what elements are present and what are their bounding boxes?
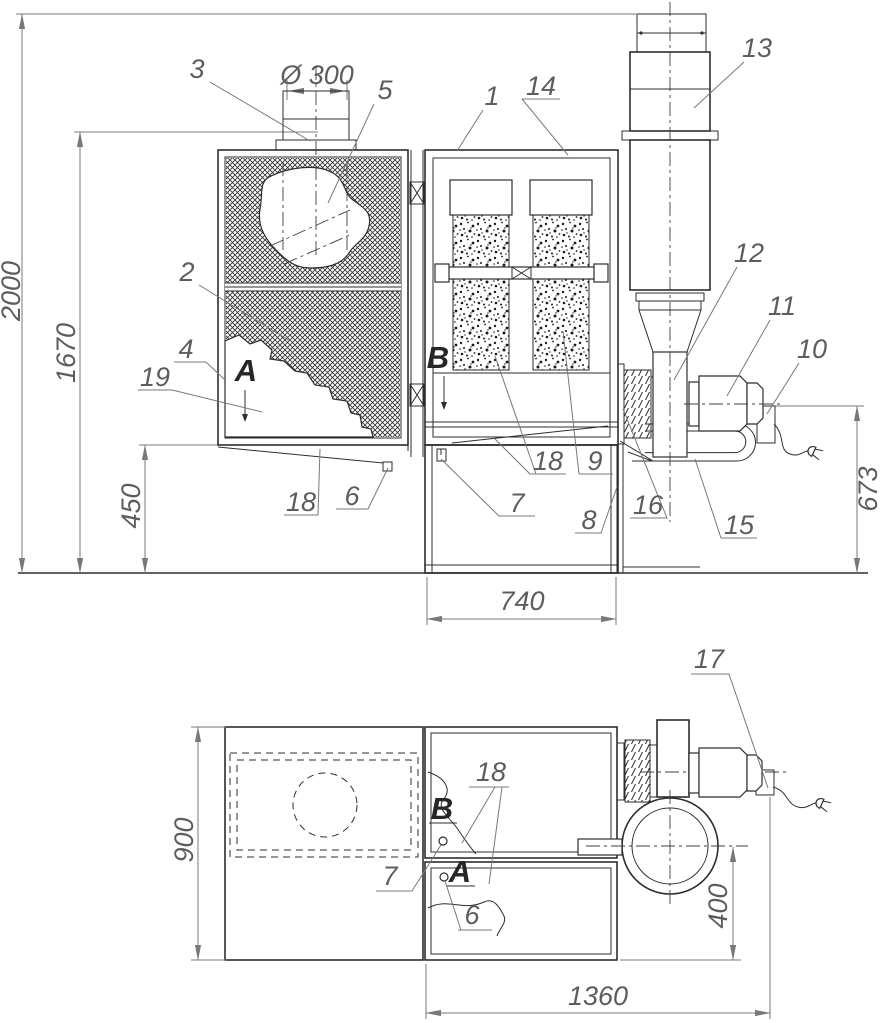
fan-scroll bbox=[657, 720, 689, 797]
dim-bin-width: 740 bbox=[499, 586, 544, 616]
power-plug-icon bbox=[806, 445, 823, 460]
plan-left-cabinet bbox=[225, 727, 423, 960]
dim-inlet-height: 1670 bbox=[51, 323, 81, 383]
callout-17: 17 bbox=[694, 644, 725, 674]
callout-18-left: 18 bbox=[286, 487, 316, 517]
callout-7-plan: 7 bbox=[382, 861, 398, 891]
dim-inlet-diameter: Ø 300 bbox=[279, 60, 354, 90]
callout-1: 1 bbox=[484, 81, 499, 111]
callout-8: 8 bbox=[581, 505, 596, 535]
plan-view: 900 400 1360 bbox=[169, 644, 831, 1019]
section-label-b: B bbox=[431, 791, 453, 826]
cabinet-hopper-slant bbox=[452, 426, 608, 443]
power-cord bbox=[774, 424, 812, 455]
callout-6-front: 6 bbox=[344, 481, 360, 511]
dim-depth: 900 bbox=[169, 817, 199, 862]
dim-fan-offset: 400 bbox=[703, 883, 733, 928]
callout-3: 3 bbox=[189, 54, 204, 84]
hinge-column bbox=[410, 150, 424, 457]
flex-duct-plan bbox=[625, 740, 650, 802]
callout-15: 15 bbox=[724, 510, 755, 540]
dim-outlet-height: 673 bbox=[853, 466, 883, 511]
callout-19: 19 bbox=[140, 362, 170, 392]
cartridge-header-right bbox=[530, 180, 592, 215]
callout-4: 4 bbox=[178, 334, 193, 364]
motor-body-plan bbox=[699, 748, 747, 797]
view-arrow-b-label: B bbox=[427, 340, 449, 375]
filter-cabinet bbox=[425, 150, 618, 445]
filter-cartridge-right bbox=[533, 215, 589, 370]
callout-14: 14 bbox=[526, 71, 556, 101]
technical-drawing-canvas: 2000 1670 450 673 740 Ø 300 bbox=[0, 0, 891, 1023]
callout-7-front: 7 bbox=[509, 488, 525, 518]
view-arrow-b: B bbox=[427, 340, 449, 410]
dim-overall-height: 2000 bbox=[0, 261, 26, 322]
outlet-stub bbox=[578, 839, 622, 855]
cartridge-header-left bbox=[450, 180, 512, 215]
callout-9: 9 bbox=[587, 446, 602, 476]
front-view: 2000 1670 450 673 740 Ø 300 bbox=[0, 2, 883, 625]
callout-6-plan: 6 bbox=[464, 900, 480, 930]
motor-body bbox=[699, 376, 747, 431]
callout-13: 13 bbox=[742, 33, 772, 63]
technical-drawing-page: 2000 1670 450 673 740 Ø 300 bbox=[0, 0, 891, 1023]
section-label-a: A bbox=[448, 854, 471, 889]
power-cord-plan bbox=[773, 787, 820, 808]
callout-10: 10 bbox=[797, 334, 827, 364]
callout-5: 5 bbox=[377, 75, 393, 105]
callout-2: 2 bbox=[178, 257, 194, 287]
dim-overall-length: 1360 bbox=[568, 981, 628, 1011]
plan-fan-assembly bbox=[578, 720, 831, 904]
dim-clearance-height: 450 bbox=[116, 483, 146, 528]
fan-motor-front bbox=[684, 376, 823, 460]
filter-cartridge-left bbox=[453, 215, 509, 370]
left-cabinet bbox=[218, 66, 408, 471]
callout-11: 11 bbox=[768, 291, 796, 321]
fitting-circle-a bbox=[440, 873, 448, 881]
left-hopper-slant bbox=[218, 445, 408, 463]
fitting-circle-b bbox=[439, 837, 447, 845]
callout-12: 12 bbox=[734, 238, 764, 268]
callout-16: 16 bbox=[633, 490, 664, 520]
view-arrow-a-label: A bbox=[234, 353, 257, 388]
hidden-opening-circle bbox=[293, 773, 357, 837]
power-plug-icon-plan bbox=[814, 797, 831, 812]
callout-18-mid: 18 bbox=[533, 446, 563, 476]
cyclone-stack bbox=[622, 2, 718, 522]
callout-18-plan: 18 bbox=[476, 757, 506, 787]
